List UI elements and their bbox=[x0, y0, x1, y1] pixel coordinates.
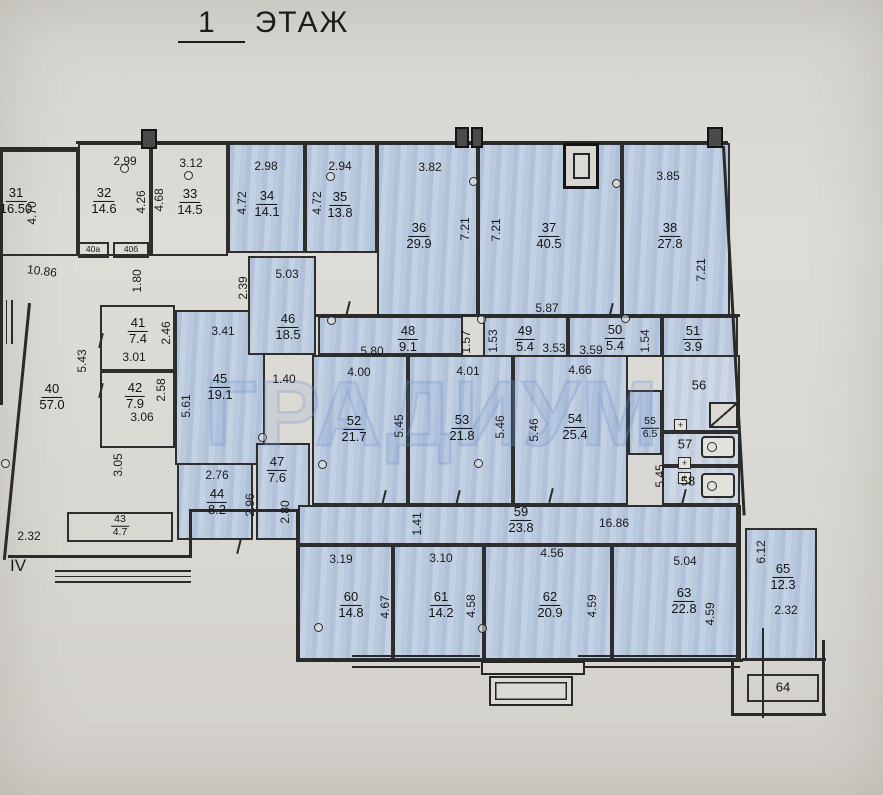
room-32-number: 32 bbox=[94, 186, 114, 202]
dimension-label: 2.32 bbox=[17, 529, 40, 543]
dimension-label: 2.32 bbox=[774, 603, 797, 617]
room-60-label: 6014.8 bbox=[338, 590, 363, 620]
room-51-area: 3.9 bbox=[683, 340, 703, 355]
room-48-label: 489.1 bbox=[398, 324, 418, 354]
room-36-area: 29.9 bbox=[406, 237, 431, 252]
dimension-label: 2.96 bbox=[243, 493, 257, 516]
room-33-number: 33 bbox=[180, 187, 200, 203]
door-axis-mark bbox=[184, 171, 193, 180]
dimension-label: 3.82 bbox=[418, 160, 441, 174]
section-marker: IV bbox=[10, 556, 26, 576]
floor-number: 1 bbox=[178, 6, 245, 43]
dimension-label: 5.61 bbox=[179, 394, 193, 417]
room-34-area: 14.1 bbox=[254, 205, 279, 220]
room-44-number: 44 bbox=[207, 487, 227, 503]
dimension-label: 7.21 bbox=[694, 258, 708, 281]
dimension-label: 4.66 bbox=[568, 363, 591, 377]
room-40b-number: 40б bbox=[124, 245, 138, 255]
dimension-label: 3.53 bbox=[542, 341, 565, 355]
room-35-area: 13.8 bbox=[327, 206, 352, 221]
room-51-label: 513.9 bbox=[683, 324, 703, 354]
dimension-label: 5.45 bbox=[653, 464, 667, 487]
room-55-label: 556.5 bbox=[641, 416, 659, 441]
wall bbox=[8, 555, 192, 558]
room-65-label: 6512.3 bbox=[770, 562, 795, 592]
dimension-label: 7.21 bbox=[458, 217, 472, 240]
room-40a-number: 40а bbox=[86, 245, 100, 255]
dimension-label: 3.05 bbox=[111, 453, 125, 476]
dimension-label: 2.76 bbox=[205, 468, 228, 482]
door-axis-mark bbox=[327, 316, 336, 325]
dimension-label: 16.86 bbox=[599, 516, 629, 530]
door-axis-mark bbox=[1, 459, 10, 468]
room-59-area: 23.8 bbox=[508, 521, 533, 536]
dimension-label: 4.70 bbox=[25, 201, 39, 224]
room-56-label: 56 bbox=[692, 379, 706, 394]
room-47-area: 7.6 bbox=[267, 471, 287, 486]
dimension-label: 4.59 bbox=[585, 594, 599, 617]
room-52-label: 5221.7 bbox=[341, 414, 366, 444]
door-axis-mark bbox=[477, 315, 486, 324]
dimension-label: 5.43 bbox=[75, 349, 89, 372]
floor-word: ЭТАЖ bbox=[255, 6, 350, 39]
room-54-number: 54 bbox=[565, 412, 585, 428]
room-46-area: 18.5 bbox=[275, 328, 300, 343]
door-axis-mark bbox=[621, 314, 630, 323]
room-49-label: 495.4 bbox=[515, 324, 535, 354]
room-37-area: 40.5 bbox=[536, 237, 561, 252]
room-48 bbox=[318, 316, 463, 355]
room-52-area: 21.7 bbox=[341, 430, 366, 445]
room-53-number: 53 bbox=[452, 413, 472, 429]
dimension-label: 2.80 bbox=[278, 500, 292, 523]
room-43-area: 4.7 bbox=[111, 527, 129, 539]
room-47-number: 47 bbox=[267, 455, 287, 471]
room-46-number: 46 bbox=[278, 312, 298, 328]
window-band bbox=[578, 655, 740, 668]
room-31-number: 31 bbox=[6, 186, 26, 202]
room-33-label: 3314.5 bbox=[177, 187, 202, 217]
room-40-label: 4057.0 bbox=[39, 382, 64, 412]
dimension-label: 3.85 bbox=[656, 169, 679, 183]
dimension-label: 3.06 bbox=[130, 410, 153, 424]
dimension-label: 4.56 bbox=[540, 546, 563, 560]
room-38-number: 38 bbox=[660, 221, 680, 237]
room-33-area: 14.5 bbox=[177, 203, 202, 218]
toilet-fixture bbox=[701, 436, 735, 458]
room-53-area: 21.8 bbox=[449, 429, 474, 444]
dimension-label: 2.98 bbox=[254, 159, 277, 173]
room-38-area: 27.8 bbox=[657, 237, 682, 252]
column-mark bbox=[707, 127, 723, 148]
room-63-area: 22.8 bbox=[671, 602, 696, 617]
column-mark bbox=[471, 127, 483, 148]
room-56-number: 56 bbox=[692, 379, 706, 394]
room-43-number: 43 bbox=[111, 514, 129, 527]
room-42-number: 42 bbox=[125, 381, 145, 397]
dimension-label: 4.00 bbox=[347, 365, 370, 379]
dimension-label: 3.12 bbox=[179, 156, 202, 170]
room-60-area: 14.8 bbox=[338, 606, 363, 621]
dimension-label: 1.40 bbox=[272, 372, 295, 386]
dimension-label: 3.41 bbox=[211, 324, 234, 338]
dimension-label: 4.01 bbox=[456, 364, 479, 378]
dimension-label: 3.59 bbox=[579, 343, 602, 357]
dimension-label: 1.41 bbox=[410, 512, 424, 535]
room-34-label: 3414.1 bbox=[254, 189, 279, 219]
room-36-number: 36 bbox=[409, 221, 429, 237]
room-61-label: 6114.2 bbox=[428, 590, 453, 620]
room-52-number: 52 bbox=[344, 414, 364, 430]
toilet-bowl-icon bbox=[707, 442, 717, 452]
dimension-label: 4.67 bbox=[378, 595, 392, 618]
dimension-label: 1.80 bbox=[130, 269, 144, 292]
room-37-label: 3740.5 bbox=[536, 221, 561, 251]
room-61-area: 14.2 bbox=[428, 606, 453, 621]
room-62-area: 20.9 bbox=[537, 606, 562, 621]
dimension-label: 4.58 bbox=[464, 594, 478, 617]
room-40-area: 57.0 bbox=[39, 398, 64, 413]
room-35-label: 3513.8 bbox=[327, 190, 352, 220]
dimension-label: 7.21 bbox=[489, 218, 503, 241]
door-axis-mark bbox=[314, 623, 323, 632]
room-44-area: 8.2 bbox=[207, 503, 227, 518]
room-40-number: 40 bbox=[42, 382, 62, 398]
room-34-number: 34 bbox=[257, 189, 277, 205]
dimension-label: 4.26 bbox=[134, 190, 148, 213]
wall bbox=[316, 314, 740, 317]
dimension-label: 2.39 bbox=[236, 276, 250, 299]
room-44-label: 448.2 bbox=[207, 487, 227, 517]
dimension-label: 5.87 bbox=[535, 301, 558, 315]
room-36-label: 3629.9 bbox=[406, 221, 431, 251]
room-51-number: 51 bbox=[683, 324, 703, 340]
room-62-label: 6220.9 bbox=[537, 590, 562, 620]
dimension-label: 4.68 bbox=[152, 188, 166, 211]
room-45-area: 19.1 bbox=[207, 388, 232, 403]
room-57-label: 57 bbox=[678, 438, 692, 453]
dimension-label: 4.72 bbox=[235, 191, 249, 214]
room-46-label: 4618.5 bbox=[275, 312, 300, 342]
room-54-label: 5425.4 bbox=[562, 412, 587, 442]
room-58-label: 58 bbox=[681, 475, 695, 490]
room-62-number: 62 bbox=[540, 590, 560, 606]
dimension-label: 3.01 bbox=[122, 350, 145, 364]
elevator-cab bbox=[573, 153, 590, 179]
floorplan-scan: 1ЭТАЖ ГРАДИУМ IV + + + 3116.503214.63314… bbox=[0, 0, 883, 795]
dimension-tick bbox=[236, 539, 242, 554]
room-35-number: 35 bbox=[330, 190, 350, 206]
dimension-label: 5.45 bbox=[392, 414, 406, 437]
room-40a-label: 40а bbox=[86, 245, 100, 255]
wall bbox=[731, 713, 826, 716]
dimension-label: 5.80 bbox=[360, 344, 383, 358]
room-58-number: 58 bbox=[681, 475, 695, 490]
dimension-label: 1.54 bbox=[638, 329, 652, 352]
floor-plan: ГРАДИУМ IV + + + 3116.503214.63314.53414… bbox=[0, 0, 883, 795]
room-43-label: 434.7 bbox=[111, 514, 129, 539]
room-60-number: 60 bbox=[341, 590, 361, 606]
dimension-label: 2.94 bbox=[328, 159, 351, 173]
room-64-label: 64 bbox=[776, 681, 790, 696]
room-57-number: 57 bbox=[678, 438, 692, 453]
room-55-area: 6.5 bbox=[641, 429, 659, 441]
room-47-label: 477.6 bbox=[267, 455, 287, 485]
door-axis-mark bbox=[469, 177, 478, 186]
dimension-label: 3.19 bbox=[329, 552, 352, 566]
room-59-number: 59 bbox=[511, 505, 531, 521]
dimension-label: 5.03 bbox=[275, 267, 298, 281]
room-45-label: 4519.1 bbox=[207, 372, 232, 402]
dimension-label: 4.72 bbox=[310, 191, 324, 214]
room-32-label: 3214.6 bbox=[91, 186, 116, 216]
room-32-area: 14.6 bbox=[91, 202, 116, 217]
room-59-label: 5923.8 bbox=[508, 505, 533, 535]
column-mark bbox=[455, 127, 469, 148]
room-54-area: 25.4 bbox=[562, 428, 587, 443]
column-mark bbox=[141, 129, 157, 149]
room-42-label: 427.9 bbox=[125, 381, 145, 411]
page-title: 1ЭТАЖ bbox=[178, 6, 349, 43]
wall bbox=[731, 661, 734, 716]
room-41-label: 417.4 bbox=[128, 316, 148, 346]
room-49-area: 5.4 bbox=[515, 340, 535, 355]
dimension-label: 10.86 bbox=[26, 262, 58, 280]
room-40b-label: 40б bbox=[124, 245, 138, 255]
room-55-number: 55 bbox=[641, 416, 659, 429]
room-38-label: 3827.8 bbox=[657, 221, 682, 251]
window-band bbox=[352, 655, 480, 668]
room-50-label: 505.4 bbox=[605, 323, 625, 353]
wall bbox=[742, 658, 826, 661]
wall bbox=[822, 640, 825, 716]
room-41-area: 7.4 bbox=[128, 332, 148, 347]
door-axis-mark bbox=[478, 624, 487, 633]
door-axis-mark bbox=[612, 179, 621, 188]
room-37-number: 37 bbox=[539, 221, 559, 237]
dimension-label: 2.46 bbox=[159, 321, 173, 344]
room-65-area: 12.3 bbox=[770, 578, 795, 593]
room-61-number: 61 bbox=[431, 590, 451, 606]
ventilation-duct-icon bbox=[709, 402, 738, 428]
entrance-landing bbox=[481, 661, 585, 675]
dimension-label: 6.12 bbox=[754, 540, 768, 563]
dimension-label: 5.04 bbox=[673, 554, 696, 568]
room-64-number: 64 bbox=[776, 681, 790, 696]
dimension-label: 5.46 bbox=[527, 418, 541, 441]
room-48-area: 9.1 bbox=[398, 340, 418, 355]
entrance-steps bbox=[489, 676, 573, 706]
window-band bbox=[55, 570, 191, 583]
dimension-label: 5.46 bbox=[493, 415, 507, 438]
wall bbox=[0, 147, 78, 150]
room-48-number: 48 bbox=[398, 324, 418, 340]
toilet-bowl-icon bbox=[707, 481, 717, 491]
wall bbox=[189, 511, 192, 558]
room-41-number: 41 bbox=[128, 316, 148, 332]
room-50-number: 50 bbox=[605, 323, 625, 339]
wall bbox=[738, 505, 741, 661]
room-42-area: 7.9 bbox=[125, 397, 145, 412]
dimension-label: 2.99 bbox=[113, 154, 136, 168]
room-65-number: 65 bbox=[773, 562, 793, 578]
room-63-number: 63 bbox=[674, 586, 694, 602]
room-63-label: 6322.8 bbox=[671, 586, 696, 616]
window-band bbox=[0, 300, 13, 344]
dimension-label: 4.59 bbox=[703, 602, 717, 625]
dimension-label: 3.10 bbox=[429, 551, 452, 565]
dimension-label: 1.57 bbox=[459, 330, 473, 353]
room-49-number: 49 bbox=[515, 324, 535, 340]
wall bbox=[76, 141, 728, 144]
wall bbox=[762, 628, 764, 718]
dimension-label: 1.53 bbox=[486, 329, 500, 352]
room-50-area: 5.4 bbox=[605, 339, 625, 354]
room-53-label: 5321.8 bbox=[449, 413, 474, 443]
wall bbox=[296, 509, 299, 662]
dimension-label: 2.58 bbox=[154, 378, 168, 401]
room-45-number: 45 bbox=[210, 372, 230, 388]
toilet-fixture bbox=[701, 473, 735, 498]
